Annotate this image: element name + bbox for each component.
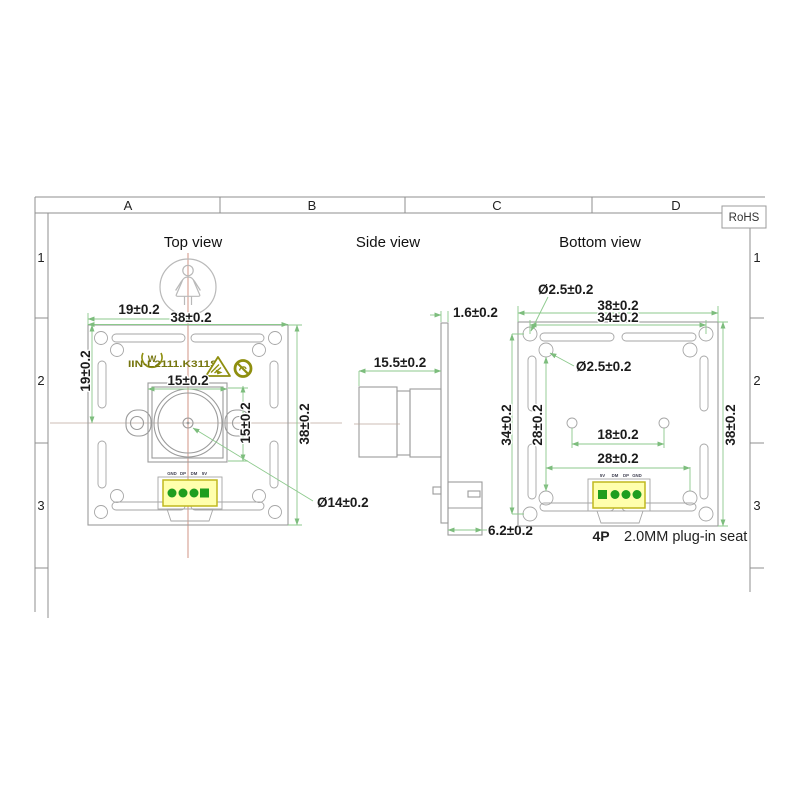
- row-label-3-left: 3: [37, 498, 44, 513]
- pin-label: 5V: [202, 471, 207, 476]
- dim-half-height: 19±0.2: [78, 350, 93, 391]
- dim-lens-diameter: Ø14±0.2: [317, 495, 369, 510]
- top-view-title: Top view: [164, 234, 223, 251]
- row-label-1-left: 1: [37, 250, 44, 265]
- dim-board-thickness: 1.6±0.2: [453, 305, 498, 320]
- pin-label: GND: [632, 473, 642, 478]
- pin-label: DM: [612, 473, 619, 478]
- dim-inner-span-v: 28±0.2: [530, 404, 545, 445]
- connector-bottom: 5V DM DP GND: [588, 473, 650, 523]
- lens-center-dot: [187, 422, 190, 425]
- bottom-view: Bottom view 5V DM DP GND: [499, 234, 747, 545]
- camera-module-drawing: A B C D 1 2 3 1 2 3 RoHS Top view: [0, 0, 800, 800]
- dim-lens-width: 15±0.2: [167, 373, 208, 388]
- pin-label: 5V: [600, 473, 605, 478]
- drawing-frame: A B C D 1 2 3 1 2 3 RoHS: [35, 197, 766, 618]
- row-label-3-right: 3: [753, 498, 760, 513]
- dim-width: 38±0.2: [170, 310, 211, 325]
- top-view: Top view: [50, 234, 369, 558]
- bottom-view-title: Bottom view: [559, 234, 641, 251]
- pin-label: GND: [167, 471, 177, 476]
- row-label-2-right: 2: [753, 373, 760, 388]
- dim-lens-length: 15.5±0.2: [374, 355, 426, 370]
- dim-inner-span-h: 28±0.2: [597, 451, 638, 466]
- dim-hole-inner: Ø2.5±0.2: [576, 359, 631, 374]
- column-label-a: A: [124, 198, 133, 213]
- side-profile: [359, 323, 448, 523]
- rohs-label: RoHS: [729, 212, 760, 224]
- dim-height: 38±0.2: [297, 403, 312, 444]
- row-label-1-right: 1: [753, 250, 760, 265]
- column-label-b: B: [308, 198, 317, 213]
- rohs-badge: RoHS: [722, 206, 766, 228]
- pin-label: DP: [623, 473, 629, 478]
- side-connector: [433, 482, 482, 535]
- connector-top: GND DP DM 5V: [158, 471, 222, 521]
- column-label-c: C: [492, 198, 501, 213]
- connector-pin-count: 4P: [592, 528, 609, 544]
- column-label-d: D: [671, 198, 680, 213]
- row-label-2-left: 2: [37, 373, 44, 388]
- pin-label: DP: [180, 471, 186, 476]
- side-view-title: Side view: [356, 234, 420, 251]
- side-view: Side view 1.6±0.2 15.5±0.2 6.2±0.2: [354, 234, 533, 538]
- connector-note: 4P 2.0MM plug-in seat: [592, 528, 747, 545]
- dim-mid-holes: 18±0.2: [597, 427, 638, 442]
- dim-hole-corner: Ø2.5±0.2: [538, 282, 593, 297]
- connector-note-text: 2.0MM plug-in seat: [624, 529, 747, 545]
- dim-height-bottom: 38±0.2: [723, 404, 738, 445]
- dim-lens-height: 15±0.2: [238, 402, 253, 443]
- board-marking: IIN-L2111.K311S: [128, 359, 218, 369]
- engineering-drawing-page: A B C D 1 2 3 1 2 3 RoHS Top view: [0, 0, 800, 800]
- dim-hole-span-h: 34±0.2: [597, 310, 638, 325]
- no-touch-icon: [235, 361, 251, 377]
- dim-connector-depth: 6.2±0.2: [488, 523, 533, 538]
- dim-half-width: 19±0.2: [118, 302, 159, 317]
- pin-label: DM: [191, 471, 198, 476]
- dim-hole-span-v: 34±0.2: [499, 404, 514, 445]
